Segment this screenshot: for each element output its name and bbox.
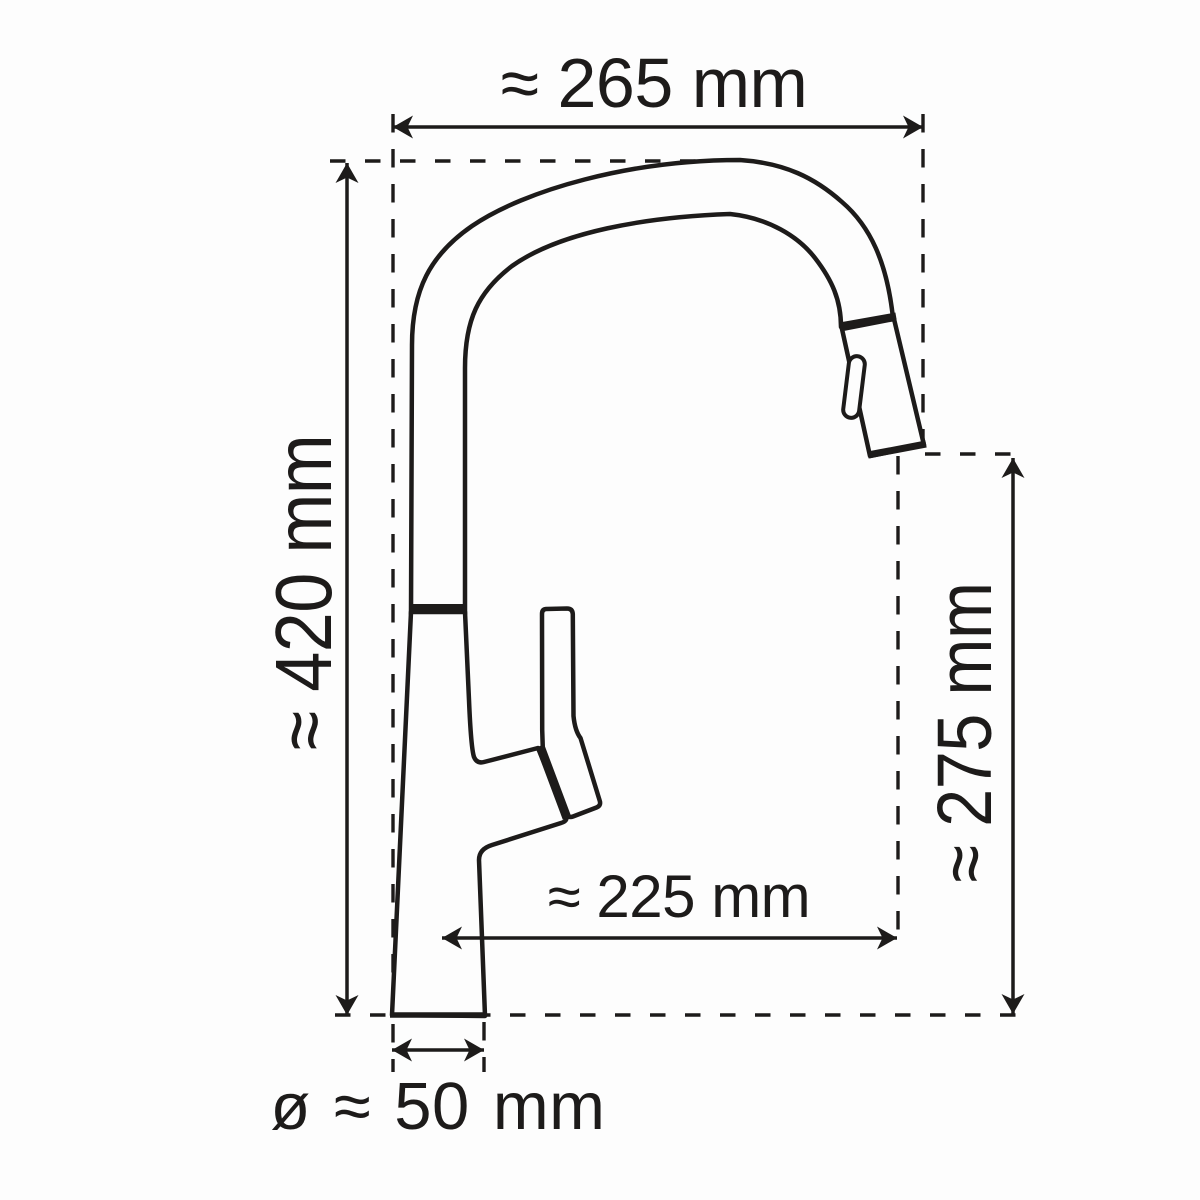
svg-text:ø ≈ 50 mm: ø ≈ 50 mm (271, 1069, 606, 1144)
svg-text:≈ 275 mm: ≈ 275 mm (922, 582, 1008, 882)
svg-text:≈ 265 mm: ≈ 265 mm (501, 44, 808, 122)
svg-text:≈ 420 mm: ≈ 420 mm (260, 435, 349, 751)
svg-text:≈ 225 mm: ≈ 225 mm (548, 863, 810, 930)
